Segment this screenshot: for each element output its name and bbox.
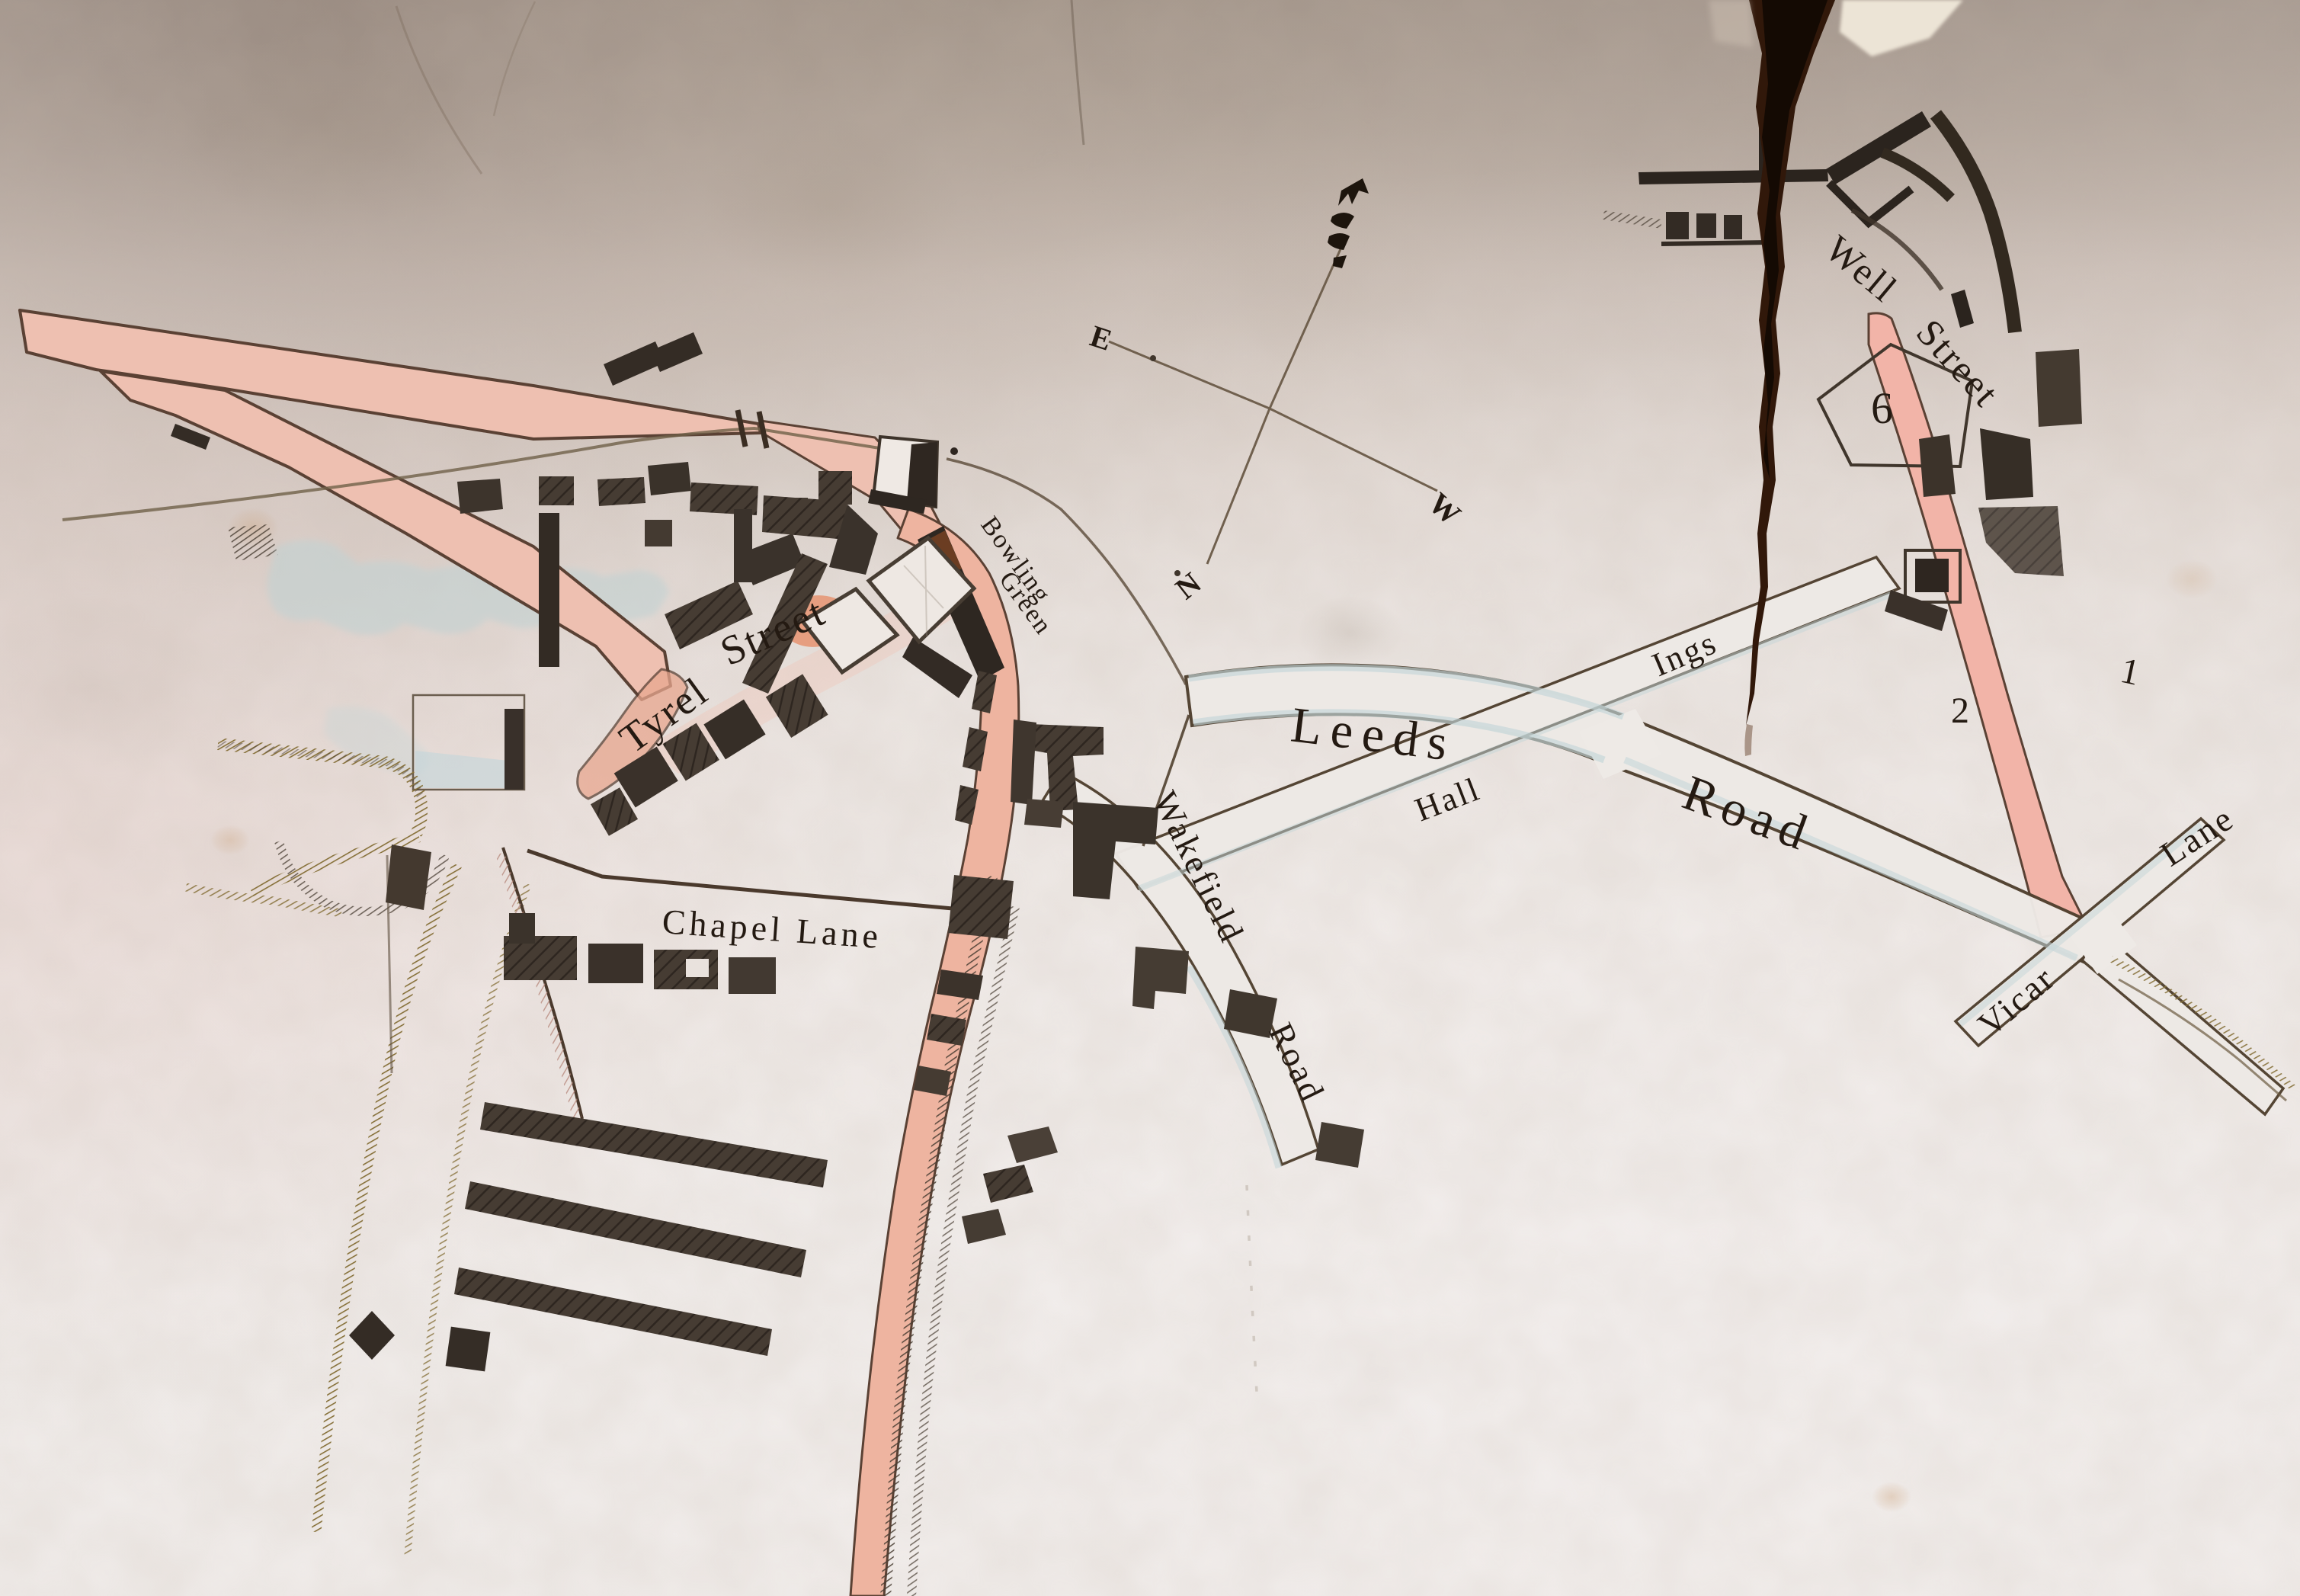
- svg-text:2: 2: [1951, 691, 1969, 731]
- svg-text:6: 6: [1871, 383, 1893, 433]
